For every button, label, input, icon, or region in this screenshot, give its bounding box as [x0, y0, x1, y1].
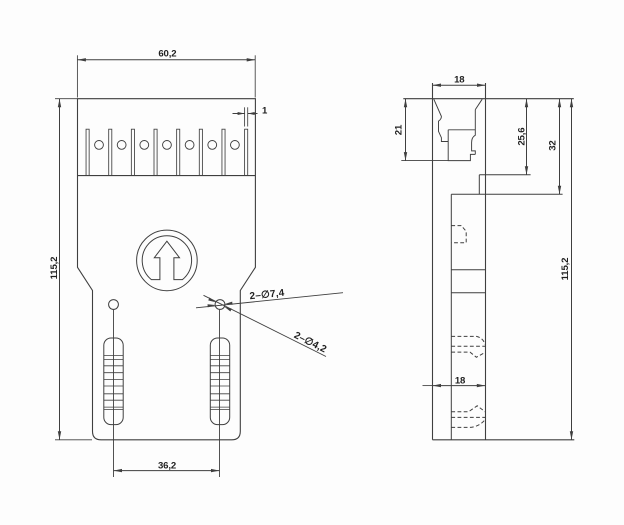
- svg-text:25,6: 25,6: [516, 128, 527, 146]
- svg-text:115,2: 115,2: [560, 258, 571, 281]
- svg-text:115,2: 115,2: [49, 257, 60, 280]
- svg-text:60,2: 60,2: [158, 48, 176, 59]
- svg-text:21: 21: [393, 124, 404, 135]
- svg-text:32: 32: [547, 140, 558, 150]
- svg-text:36,2: 36,2: [158, 460, 176, 471]
- svg-text:18: 18: [454, 74, 465, 85]
- svg-text:2–∅7,4: 2–∅7,4: [249, 288, 285, 303]
- svg-text:2–∅4,2: 2–∅4,2: [292, 330, 328, 356]
- svg-text:18: 18: [455, 375, 466, 386]
- svg-text:1: 1: [262, 106, 268, 117]
